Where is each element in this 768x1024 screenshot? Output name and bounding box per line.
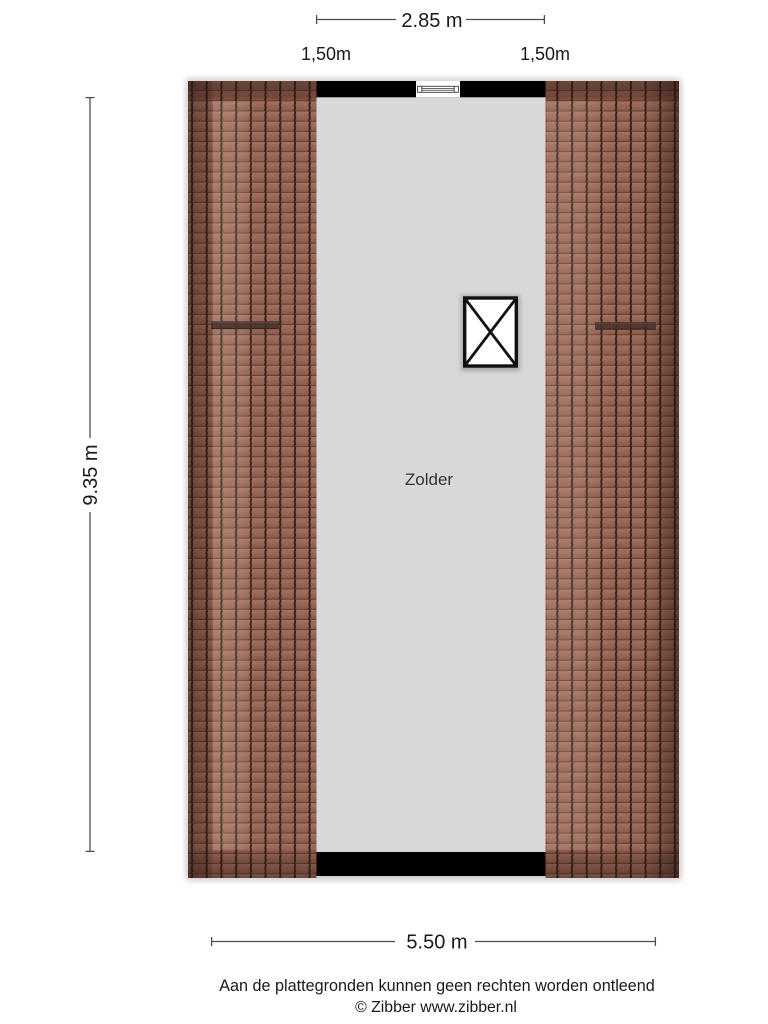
svg-text:2.85 m: 2.85 m xyxy=(401,10,462,32)
svg-text:1,50m: 1,50m xyxy=(520,44,570,64)
svg-text:9.35 m: 9.35 m xyxy=(80,444,102,505)
svg-text:© Zibber www.zibber.nl: © Zibber www.zibber.nl xyxy=(355,999,517,1016)
svg-text:Aan de plattegronden kunnen ge: Aan de plattegronden kunnen geen rechten… xyxy=(219,977,655,995)
svg-text:Zolder: Zolder xyxy=(405,470,454,489)
svg-text:1,50m: 1,50m xyxy=(301,44,351,64)
svg-text:5.50 m: 5.50 m xyxy=(406,932,467,954)
